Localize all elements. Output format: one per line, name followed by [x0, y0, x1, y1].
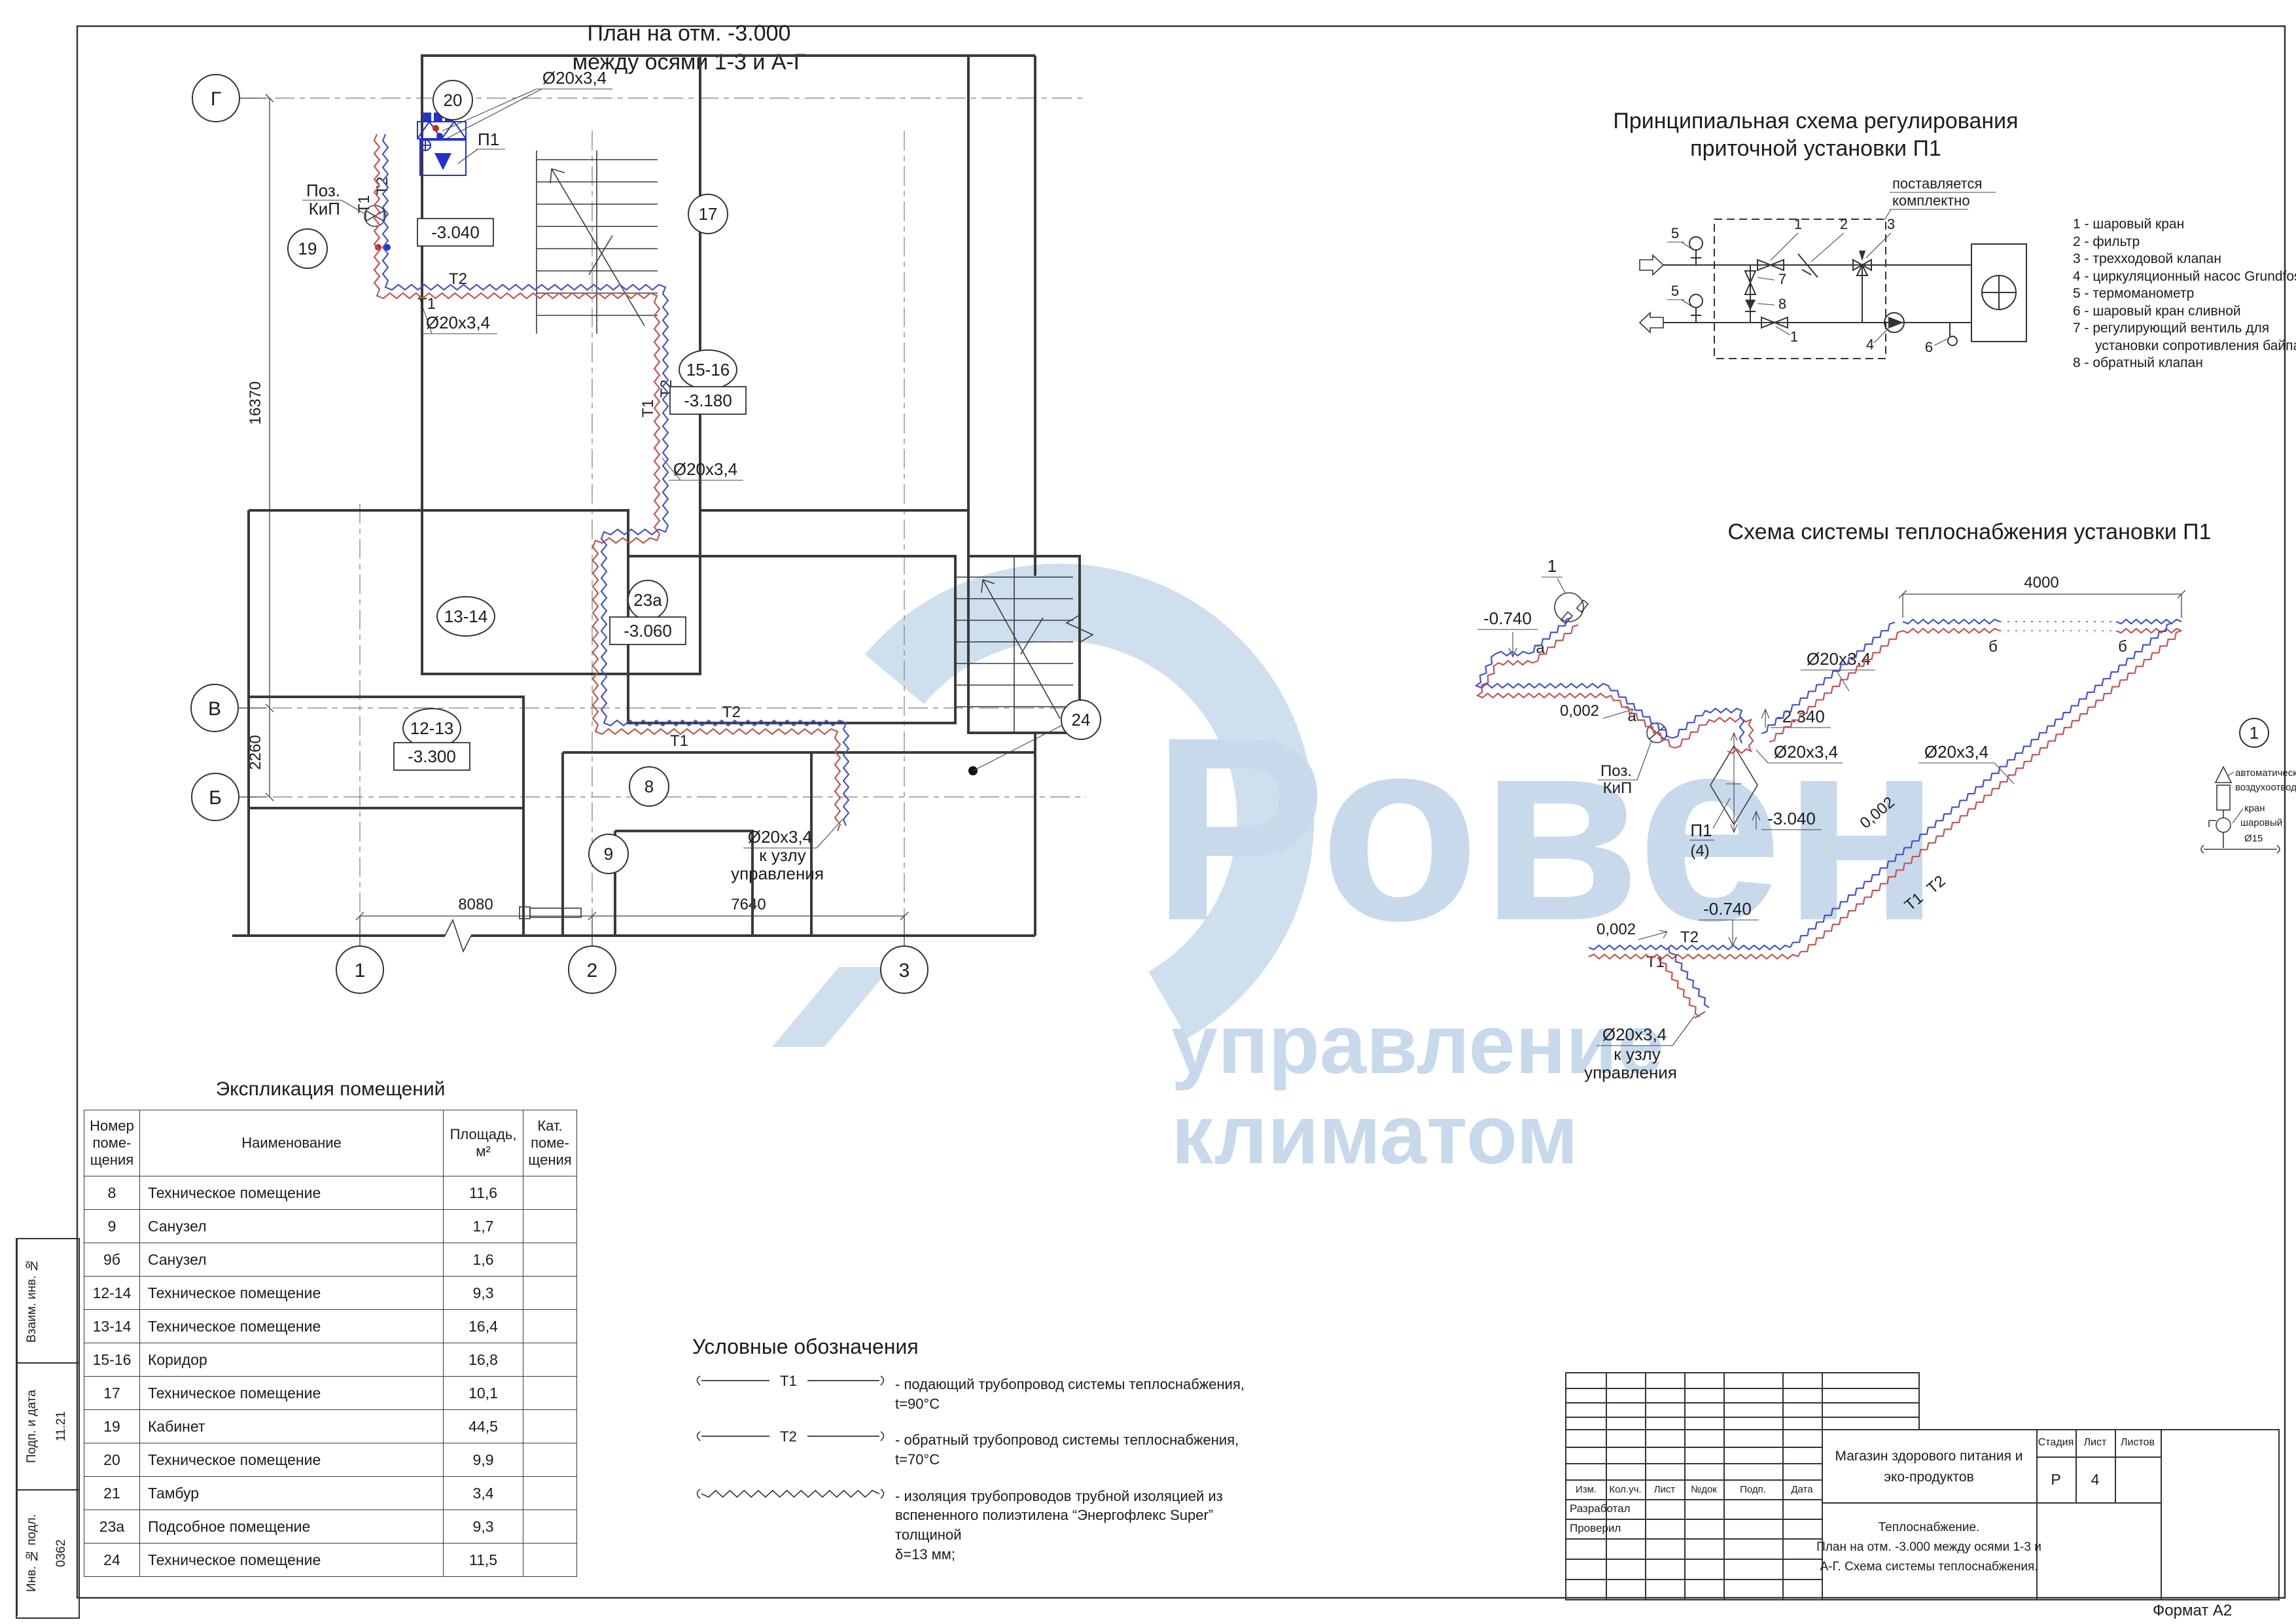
room-tag: 8	[645, 777, 654, 796]
legend-item-line: δ=13 мм;	[895, 1545, 1281, 1564]
side-value	[46, 1239, 77, 1362]
detail-text: шаровый	[2240, 817, 2282, 828]
scheme2-title: Схема системы теплоснабжения установки П…	[1728, 520, 2212, 544]
t1-pipe-symbol-icon: T1	[692, 1372, 895, 1396]
table-row: 9бСанузел1,6	[84, 1243, 577, 1277]
table-row: 12-14Техническое помещение9,3	[84, 1277, 577, 1310]
table-cell: 17	[84, 1377, 140, 1410]
tb-object-line1: Магазин здорового питания и	[1835, 1449, 2022, 1464]
table-cell	[523, 1343, 577, 1377]
table-cell: 3,4	[444, 1477, 523, 1510]
fixture-icon	[520, 907, 581, 919]
table-row: 17Техническое помещение10,1	[84, 1377, 577, 1410]
table-row: 19Кабинет44,5	[84, 1410, 577, 1443]
pipe-size-label: Ø20x3,4	[1924, 742, 1988, 762]
slope-label: 0,002	[1856, 794, 1898, 832]
component-num: 5	[1671, 283, 1679, 299]
pipes	[374, 134, 2181, 1017]
component-num: 3	[1887, 216, 1895, 232]
t1-pipe	[2116, 629, 2181, 633]
table-cell: 15-16	[84, 1343, 140, 1377]
legend-item: - изоляция трубопроводов трубной изоляци…	[692, 1487, 1281, 1564]
room-tag: 20	[444, 90, 463, 110]
table-cell: 9,9	[444, 1443, 523, 1477]
table-cell: 9,3	[444, 1277, 523, 1310]
detail-ref: 1	[1547, 556, 1557, 576]
pipe-t1-label: T1	[1901, 889, 1927, 915]
tb-role-checked: Проверил	[1570, 1522, 1621, 1535]
table-cell	[523, 1310, 577, 1343]
tb-col: Лист	[1654, 1484, 1676, 1495]
unit-label-p1: П1	[478, 130, 499, 149]
axis-label-b: Б	[209, 787, 222, 809]
symbol-t1: T1	[780, 1373, 797, 1389]
table-row: 8Техническое помещение11,6	[84, 1176, 577, 1210]
explication-table: Номер поме- щения Наименование Площадь, …	[84, 1110, 577, 1577]
legend-item-text: - обратный трубопровод системы теплоснаб…	[895, 1430, 1281, 1469]
table-row: 15-16Коридор16,8	[84, 1343, 577, 1377]
table-cell: Техническое помещение	[139, 1544, 443, 1577]
table-cell: Санузел	[139, 1243, 443, 1277]
detail-text: воздухоотводчик	[2235, 782, 2296, 793]
dim-4000: 4000	[2024, 574, 2058, 591]
table-cell: Техническое помещение	[139, 1310, 443, 1343]
table-row: 21Тамбур3,4	[84, 1477, 577, 1510]
legend-line: 8 - обратный клапан	[2073, 355, 2289, 372]
slope-label: 0,002	[1560, 702, 1599, 720]
note-supplied: поставляется	[1892, 175, 1982, 192]
elevation-value: -0.740	[1483, 609, 1532, 628]
pipe-t2-label: T2	[1680, 928, 1699, 946]
pipe-size-label: Ø20x3,4	[748, 827, 812, 847]
format-label: Формат А2	[2153, 1602, 2232, 1620]
elevation-value: -3.300	[408, 747, 456, 766]
elevation-value: -3.040	[431, 222, 480, 242]
pipe-t1-label: T1	[670, 732, 688, 750]
pipe-route-label: управления	[731, 864, 824, 883]
component-num: 2	[1840, 216, 1848, 232]
table-cell: Техническое помещение	[139, 1176, 443, 1210]
kip-label: КиП	[309, 199, 340, 219]
tb-doc-line1: Теплоснабжение.	[1879, 1521, 1980, 1535]
table-cell: Кабинет	[139, 1410, 443, 1443]
legend-item-text: - подающий трубопровод системы теплоснаб…	[895, 1375, 1281, 1413]
match-label-b: б	[1988, 638, 1998, 656]
side-label: Подп. и дата	[17, 1364, 46, 1489]
pipe-route-label: к узлу	[759, 845, 805, 865]
tb-stage-value: Р	[2051, 1471, 2060, 1489]
tb-col: Подп.	[1740, 1484, 1766, 1495]
side-box-podp: Подп. и дата 11.21	[17, 1364, 79, 1491]
legend-item: T2 - обратный трубопровод системы теплос…	[692, 1430, 1281, 1469]
table-cell	[523, 1443, 577, 1477]
table-cell: 19	[84, 1410, 140, 1443]
poz-label: Поз.	[306, 181, 340, 200]
legend-line: установки сопротивления байпаса	[2073, 338, 2289, 355]
tb-sheets-label: Листов	[2121, 1437, 2155, 1449]
table-cell: 8	[84, 1176, 140, 1210]
table-cell: 16,8	[444, 1343, 523, 1377]
component-num: 5	[1671, 225, 1679, 241]
elevation-value: -3.060	[624, 621, 672, 641]
explication-title: Экспликация помещений	[84, 1078, 577, 1101]
elevation-value: -0.740	[1703, 899, 1752, 919]
table-row: 9Санузел1,7	[84, 1210, 577, 1243]
side-label: Взаим. инв. №	[17, 1239, 46, 1362]
pipe-t2-label: T2	[1924, 872, 1949, 898]
symbols-legend-title: Условные обозначения	[692, 1335, 1281, 1359]
component-num: 6	[1925, 339, 1933, 355]
table-row: 20Техническое помещение9,9	[84, 1443, 577, 1477]
kip-label: КиП	[1603, 779, 1633, 797]
table-cell	[523, 1210, 577, 1243]
detail-text: кран	[2244, 803, 2265, 814]
t1-pipe	[1798, 631, 2181, 957]
legend-item-line: - изоляция трубопроводов трубной изоляци…	[895, 1487, 1281, 1506]
plan-pipe-labels: Ø20x3,4 П1 Поз. КиП T1 T2 T2 T1 Ø20x3,4 …	[302, 68, 843, 883]
tb-object-line2: эко-продуктов	[1884, 1470, 1973, 1485]
table-cell	[523, 1544, 577, 1577]
table-cell: Техническое помещение	[139, 1377, 443, 1410]
table-cell: 44,5	[444, 1410, 523, 1443]
pipe-t2-label: T2	[374, 177, 391, 195]
room-tag: 9	[604, 844, 613, 864]
pipe-t1-label: T1	[417, 295, 436, 313]
col-header: Наименование	[139, 1110, 443, 1176]
legend-line: 1 - шаровый кран	[2073, 216, 2289, 234]
scheme1: Принципиальная схема регулирования прито…	[1613, 109, 2026, 359]
table-cell: 13-14	[84, 1310, 140, 1343]
axis-label-3: 3	[899, 960, 910, 981]
tb-col: Кол.уч.	[1609, 1484, 1641, 1495]
side-box-inv: Инв. № подл. 0362	[17, 1491, 79, 1616]
component-num: 1	[1790, 328, 1798, 345]
pipe-size-label: Ø20x3,4	[673, 459, 737, 479]
col-header: Кат. поме- щения	[523, 1110, 577, 1176]
room-tag: 24	[1072, 710, 1091, 730]
scheme1-title-line2: приточной установки П1	[1690, 136, 1941, 161]
table-cell: Подсобное помещение	[139, 1510, 443, 1544]
table-cell: 1,6	[444, 1243, 523, 1277]
table-cell: 9б	[84, 1243, 140, 1277]
side-box-vzam: Взаим. инв. №	[17, 1239, 79, 1364]
room-tag: 19	[298, 239, 317, 258]
legend-line: 6 - шаровый кран сливной	[2073, 303, 2289, 321]
tb-col: Изм.	[1576, 1484, 1597, 1495]
table-row: 13-14Техническое помещение16,4	[84, 1310, 577, 1343]
room-tag: 15-16	[686, 360, 730, 380]
axis-label-g: Г	[211, 88, 221, 110]
side-label: Инв. № подл.	[17, 1491, 46, 1616]
plan-title: План на отм. -3.000 между осями 1-3 и А-…	[573, 21, 806, 75]
pipe-t2-label: T2	[722, 703, 741, 721]
stairs-icon	[537, 150, 1073, 733]
t2-pipe	[1672, 709, 1744, 743]
dim-8080: 8080	[458, 896, 493, 913]
side-strip: Взаим. инв. № Подп. и дата 11.21 Инв. № …	[16, 1238, 80, 1619]
table-cell	[523, 1410, 577, 1443]
table-cell: 9	[84, 1210, 140, 1243]
plan-title-line2: между осями 1-3 и А-Г	[573, 50, 806, 75]
room-tag: 17	[699, 204, 718, 224]
t2-pipe	[1903, 620, 2000, 624]
table-cell	[523, 1176, 577, 1210]
dim-16370: 16370	[247, 381, 264, 425]
slope-label: 0,002	[1597, 921, 1636, 938]
room-tag: 13-14	[444, 607, 488, 626]
pipe-route-label: управления	[1584, 1063, 1677, 1082]
plan-elevations: -3.040 -3.180 -3.060 -3.300	[394, 219, 746, 770]
table-cell: Коридор	[139, 1343, 443, 1377]
dim-7640: 7640	[731, 896, 766, 913]
room-tag: 23а	[633, 590, 662, 610]
t1-pipe	[1903, 629, 2000, 633]
component-num: 1	[1794, 216, 1802, 232]
table-cell	[523, 1510, 577, 1544]
side-value: 11.21	[46, 1364, 77, 1489]
plan-title-line1: План на отм. -3.000	[588, 21, 791, 46]
scheme1-legend: 1 - шаровый кран2 - фильтр3 - трехходово…	[2073, 216, 2289, 372]
axis-label-1: 1	[355, 960, 366, 981]
detail-text: автоматический	[2235, 768, 2296, 779]
legend-item-line: вспененного полиэтилена “Энергофлекс Sup…	[895, 1506, 1281, 1544]
table-cell: Тамбур	[139, 1477, 443, 1510]
legend-line: 4 - циркуляционный насос Grundfos	[2073, 268, 2289, 286]
legend-item: T1 - подающий трубопровод системы теплос…	[692, 1375, 1281, 1413]
table-cell: 11,5	[444, 1544, 523, 1577]
table-cell	[523, 1243, 577, 1277]
tb-sheet-label: Лист	[2084, 1437, 2107, 1449]
tb-doc-line3: А-Г. Схема системы теплоснабжения.	[1820, 1560, 2038, 1574]
explication-body: 8Техническое помещение11,69Санузел1,79бС…	[84, 1176, 577, 1577]
pipe-size-label: Ø20x3,4	[542, 68, 607, 88]
tb-stage-label: Стадия	[2038, 1437, 2074, 1449]
tb-role-developed: Разработал	[1570, 1502, 1631, 1515]
table-cell: Техническое помещение	[139, 1443, 443, 1477]
table-cell: 20	[84, 1443, 140, 1477]
table-row: 23аПодсобное помещение9,3	[84, 1510, 577, 1544]
t1-pipe	[1477, 625, 1675, 748]
elevation-value: -3.040	[1767, 809, 1816, 828]
room-tag: 12-13	[410, 718, 454, 738]
t2-pipe	[1790, 623, 2172, 947]
plan-walls	[232, 56, 1093, 951]
table-cell: 24	[84, 1544, 140, 1577]
symbols-legend: Условные обозначения T1 - подающий трубо…	[692, 1335, 1281, 1581]
table-cell: Техническое помещение	[139, 1277, 443, 1310]
title-block: Изм. Кол.уч. Лист №док Подп. Дата Разраб…	[1565, 1429, 2280, 1600]
col-header: Номер поме- щения	[84, 1110, 140, 1176]
table-cell: 16,4	[444, 1310, 523, 1343]
revision-grid	[1565, 1372, 1920, 1430]
table-row: 24Техническое помещение11,5	[84, 1544, 577, 1577]
detail-ref: 1	[2250, 723, 2259, 743]
detail-text: Ø15	[2244, 833, 2263, 844]
legend-line: 2 - фильтр	[2073, 234, 2289, 251]
pipe-size-label: Ø20x3,4	[426, 313, 490, 332]
table-cell	[523, 1277, 577, 1310]
axis-label-2: 2	[587, 960, 598, 981]
drawing-sheet: { "sheet": {"format": "Формат А2"}, "wat…	[0, 0, 2296, 1624]
scheme2: Схема системы теплоснабжения установки П…	[1477, 520, 2296, 1082]
table-cell: 1,7	[444, 1210, 523, 1243]
unit-label-p1: П1	[1690, 821, 1712, 840]
table-cell	[523, 1377, 577, 1410]
pipe-size-label: Ø20x3,4	[1774, 742, 1838, 762]
col-header: Площадь, м²	[444, 1110, 523, 1176]
legend-line: 5 - термоманометр	[2073, 285, 2289, 303]
legend-line: 7 - регулирующий вентиль для	[2073, 320, 2289, 338]
table-cell: 12-14	[84, 1277, 140, 1310]
note-complete: комплектно	[1892, 192, 1970, 209]
component-num: 7	[1778, 271, 1786, 287]
side-value: 0362	[46, 1491, 77, 1616]
component-num: 8	[1778, 296, 1786, 312]
pipe-size-label: Ø20x3,4	[1602, 1025, 1667, 1044]
tb-doc-line2: План на отм. -3.000 между осями 1-3 и	[1816, 1540, 2041, 1555]
explication: Экспликация помещений Номер поме- щения …	[84, 1078, 577, 1577]
table-cell: Санузел	[139, 1210, 443, 1243]
plan-dimensions: 16370 2260 8080 7640	[239, 94, 908, 946]
poz-label: Поз.	[1600, 762, 1632, 780]
table-cell: 21	[84, 1477, 140, 1510]
t2-pipe-symbol-icon: T2	[692, 1428, 895, 1451]
tb-sheet-value: 4	[2091, 1471, 2100, 1489]
component-num: 4	[1866, 336, 1874, 353]
unit-count: (4)	[1690, 842, 1709, 860]
table-cell	[523, 1477, 577, 1510]
pipe-t1-label: T1	[355, 195, 373, 213]
table-cell: 9,3	[444, 1510, 523, 1544]
symbol-t2: T2	[780, 1428, 797, 1445]
table-cell: 23а	[84, 1510, 140, 1544]
table-cell: 11,6	[444, 1176, 523, 1210]
t1-pipe	[1659, 957, 1700, 1017]
insulation-symbol-icon	[692, 1484, 895, 1508]
pipe-route-label: к узлу	[1614, 1044, 1660, 1064]
elevation-value: -3.180	[684, 391, 732, 410]
t1-pipe	[1589, 955, 1798, 959]
legend-item-text: - изоляция трубопроводов трубной изоляци…	[895, 1487, 1281, 1564]
tb-col: Дата	[1791, 1484, 1812, 1495]
table-cell: 10,1	[444, 1377, 523, 1410]
scheme1-title-line1: Принципиальная схема регулирования	[1613, 109, 2018, 133]
legend-line: 3 - трехходовой клапан	[2073, 251, 2289, 268]
match-label-b: б	[2118, 638, 2127, 656]
axis-label-v: В	[208, 698, 221, 720]
tb-col: №док	[1691, 1484, 1717, 1495]
